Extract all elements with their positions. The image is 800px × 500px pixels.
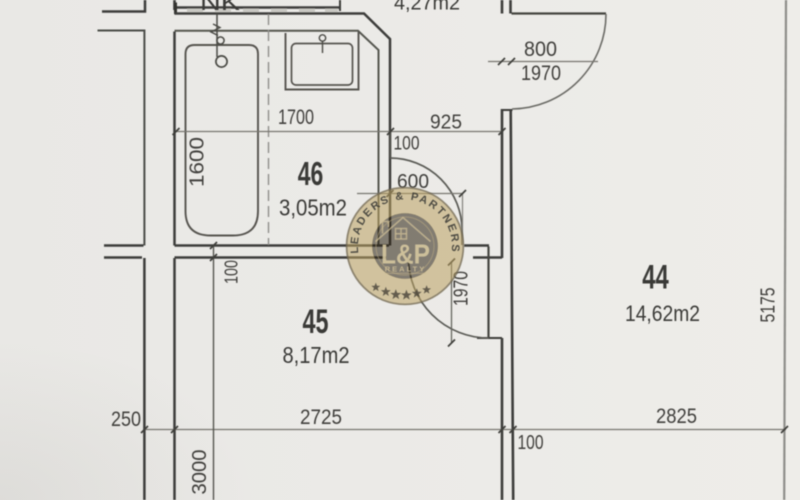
- svg-text:4,27m2: 4,27m2: [394, 0, 460, 15]
- svg-text:NK: NK: [200, 0, 241, 15]
- svg-text:2725: 2725: [300, 406, 342, 429]
- svg-text:1970: 1970: [521, 62, 561, 85]
- svg-text:45: 45: [303, 303, 329, 341]
- svg-text:46: 46: [298, 155, 324, 192]
- svg-text:1700: 1700: [278, 106, 314, 129]
- svg-text:2825: 2825: [656, 405, 697, 428]
- svg-text:100: 100: [222, 260, 242, 284]
- svg-text:5175: 5175: [758, 288, 780, 323]
- svg-text:14,62m2: 14,62m2: [625, 301, 700, 326]
- svg-text:100: 100: [518, 432, 544, 454]
- svg-text:3000: 3000: [189, 450, 211, 495]
- svg-text:REALTY: REALTY: [385, 265, 426, 274]
- svg-text:250: 250: [111, 408, 141, 431]
- svg-text:925: 925: [430, 112, 462, 134]
- svg-text:100: 100: [394, 134, 420, 155]
- svg-text:44: 44: [642, 259, 669, 297]
- svg-text:3,05m2: 3,05m2: [279, 195, 347, 221]
- svg-text:8,17m2: 8,17m2: [283, 342, 350, 368]
- svg-text:800: 800: [524, 38, 557, 61]
- svg-text:1600: 1600: [187, 137, 209, 187]
